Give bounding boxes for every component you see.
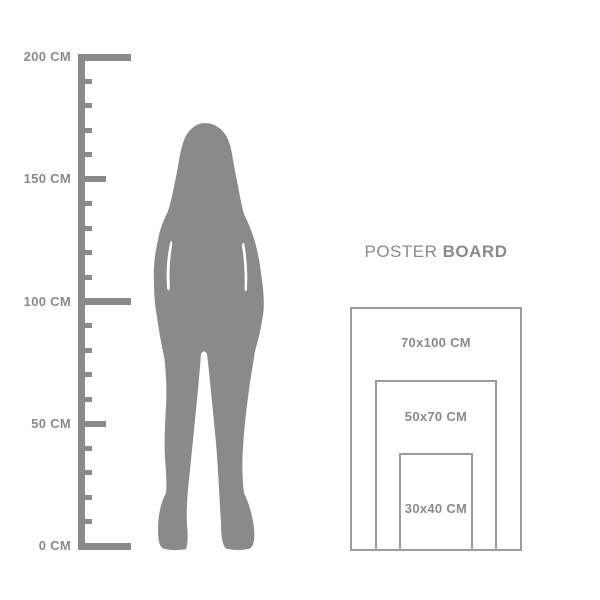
ruler-tick-130cm bbox=[78, 226, 92, 231]
ruler-label-100cm: 100 CM bbox=[7, 293, 71, 311]
size-guide-canvas: 200 CM150 CM100 CM50 CM0 CM POSTER BOARD… bbox=[0, 0, 600, 600]
ruler-tick-150cm bbox=[78, 176, 106, 182]
ruler-tick-200cm bbox=[78, 54, 131, 61]
board-size-label-30x40: 30x40 CM bbox=[366, 500, 506, 518]
board-size-label-70x100: 70x100 CM bbox=[366, 334, 506, 352]
ruler-tick-120cm bbox=[78, 250, 92, 255]
ruler-tick-90cm bbox=[78, 323, 92, 328]
ruler-tick-140cm bbox=[78, 201, 92, 206]
ruler-tick-50cm bbox=[78, 421, 106, 427]
poster-board-title: POSTER BOARD bbox=[316, 242, 556, 262]
ruler-tick-10cm bbox=[78, 519, 92, 524]
poster-board-title-regular: POSTER bbox=[365, 242, 438, 261]
ruler-tick-180cm bbox=[78, 103, 92, 108]
ruler-label-150cm: 150 CM bbox=[7, 170, 71, 188]
poster-board-title-bold: BOARD bbox=[443, 242, 508, 261]
ruler-tick-0cm bbox=[78, 543, 131, 550]
woman-silhouette bbox=[150, 120, 268, 553]
board-size-label-50x70: 50x70 CM bbox=[366, 408, 506, 426]
ruler-tick-70cm bbox=[78, 372, 92, 377]
ruler-tick-170cm bbox=[78, 128, 92, 133]
ruler-tick-30cm bbox=[78, 470, 92, 475]
ruler-tick-190cm bbox=[78, 79, 92, 84]
ruler-tick-20cm bbox=[78, 495, 92, 500]
ruler-tick-160cm bbox=[78, 152, 92, 157]
ruler-tick-110cm bbox=[78, 275, 92, 280]
ruler-label-200cm: 200 CM bbox=[7, 48, 71, 66]
ruler-tick-40cm bbox=[78, 446, 92, 451]
ruler-label-50cm: 50 CM bbox=[7, 415, 71, 433]
ruler-tick-100cm bbox=[78, 298, 131, 305]
silhouette-shape bbox=[154, 123, 264, 550]
ruler-tick-80cm bbox=[78, 348, 92, 353]
ruler-tick-60cm bbox=[78, 397, 92, 402]
ruler-label-0cm: 0 CM bbox=[7, 537, 71, 555]
